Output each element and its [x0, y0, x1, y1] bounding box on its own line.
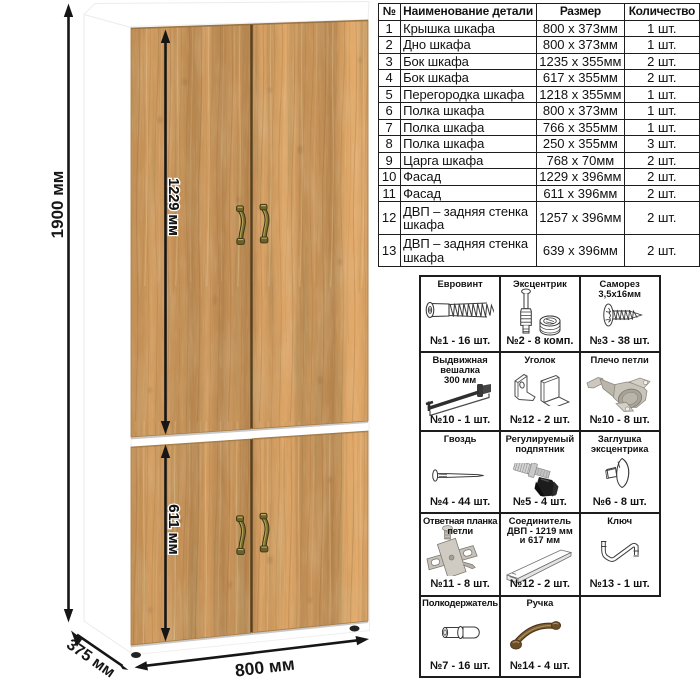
svg-text:800 мм: 800 мм	[234, 654, 296, 681]
svg-text:611 мм: 611 мм	[165, 504, 182, 555]
svg-text:1229 мм: 1229 мм	[165, 178, 181, 236]
svg-text:1900 мм: 1900 мм	[48, 171, 67, 239]
